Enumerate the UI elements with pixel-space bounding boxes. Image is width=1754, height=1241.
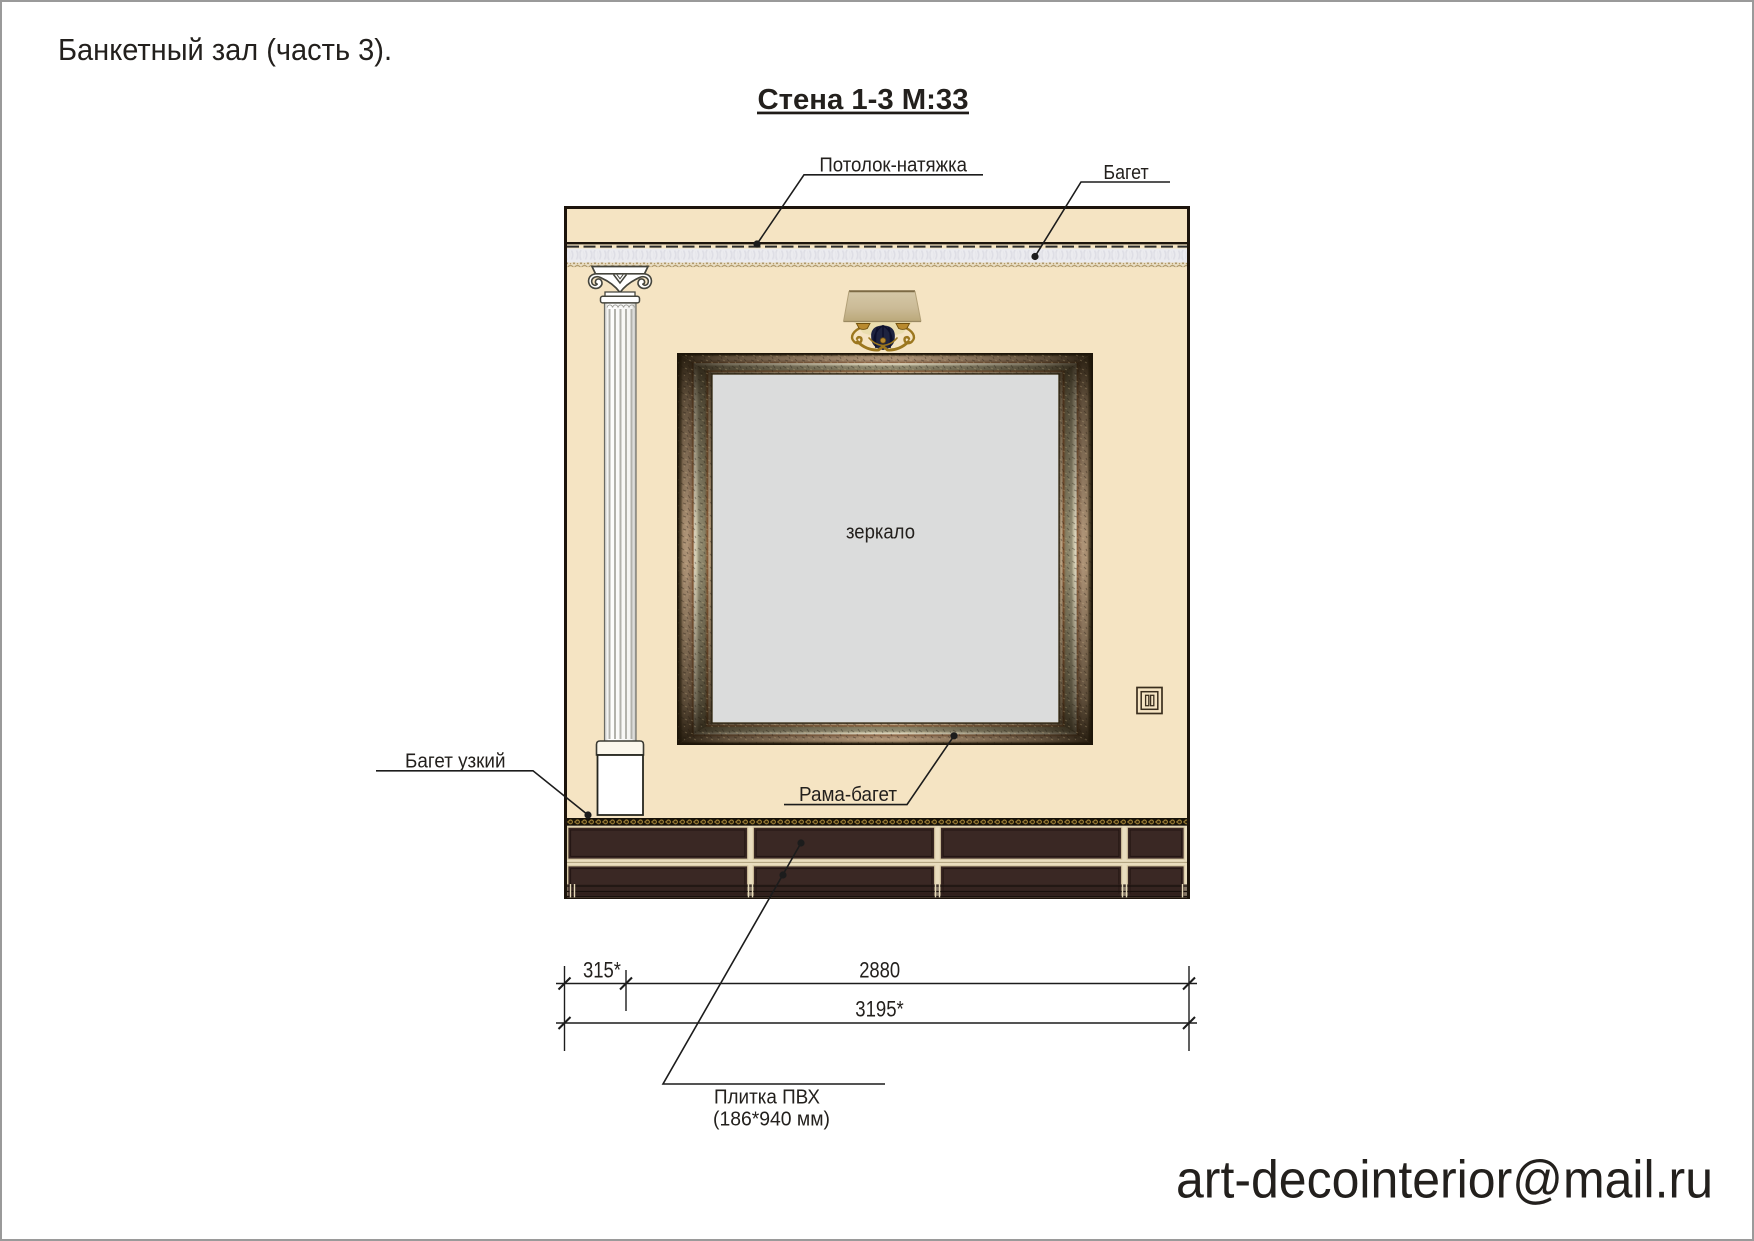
svg-text:Багет узкий: Багет узкий xyxy=(405,750,506,773)
svg-text:Потолок-натяжка: Потолок-натяжка xyxy=(819,153,967,176)
svg-text:зеркало: зеркало xyxy=(846,521,915,544)
svg-text:3195*: 3195* xyxy=(855,996,904,1021)
svg-text:Багет: Багет xyxy=(1103,161,1149,184)
svg-text:art-decointerior@mail.ru: art-decointerior@mail.ru xyxy=(1176,1150,1713,1209)
svg-text:2880: 2880 xyxy=(859,957,900,982)
svg-text:(186*940 мм): (186*940 мм) xyxy=(713,1108,830,1131)
svg-text:Банкетный зал (часть 3).: Банкетный зал (часть 3). xyxy=(58,33,392,67)
svg-text:315*: 315* xyxy=(583,957,621,982)
svg-text:Плитка ПВХ: Плитка ПВХ xyxy=(714,1086,820,1109)
svg-text:Стена 1-3 М:33: Стена 1-3 М:33 xyxy=(758,84,969,116)
svg-text:Рама-багет: Рама-багет xyxy=(799,783,897,806)
